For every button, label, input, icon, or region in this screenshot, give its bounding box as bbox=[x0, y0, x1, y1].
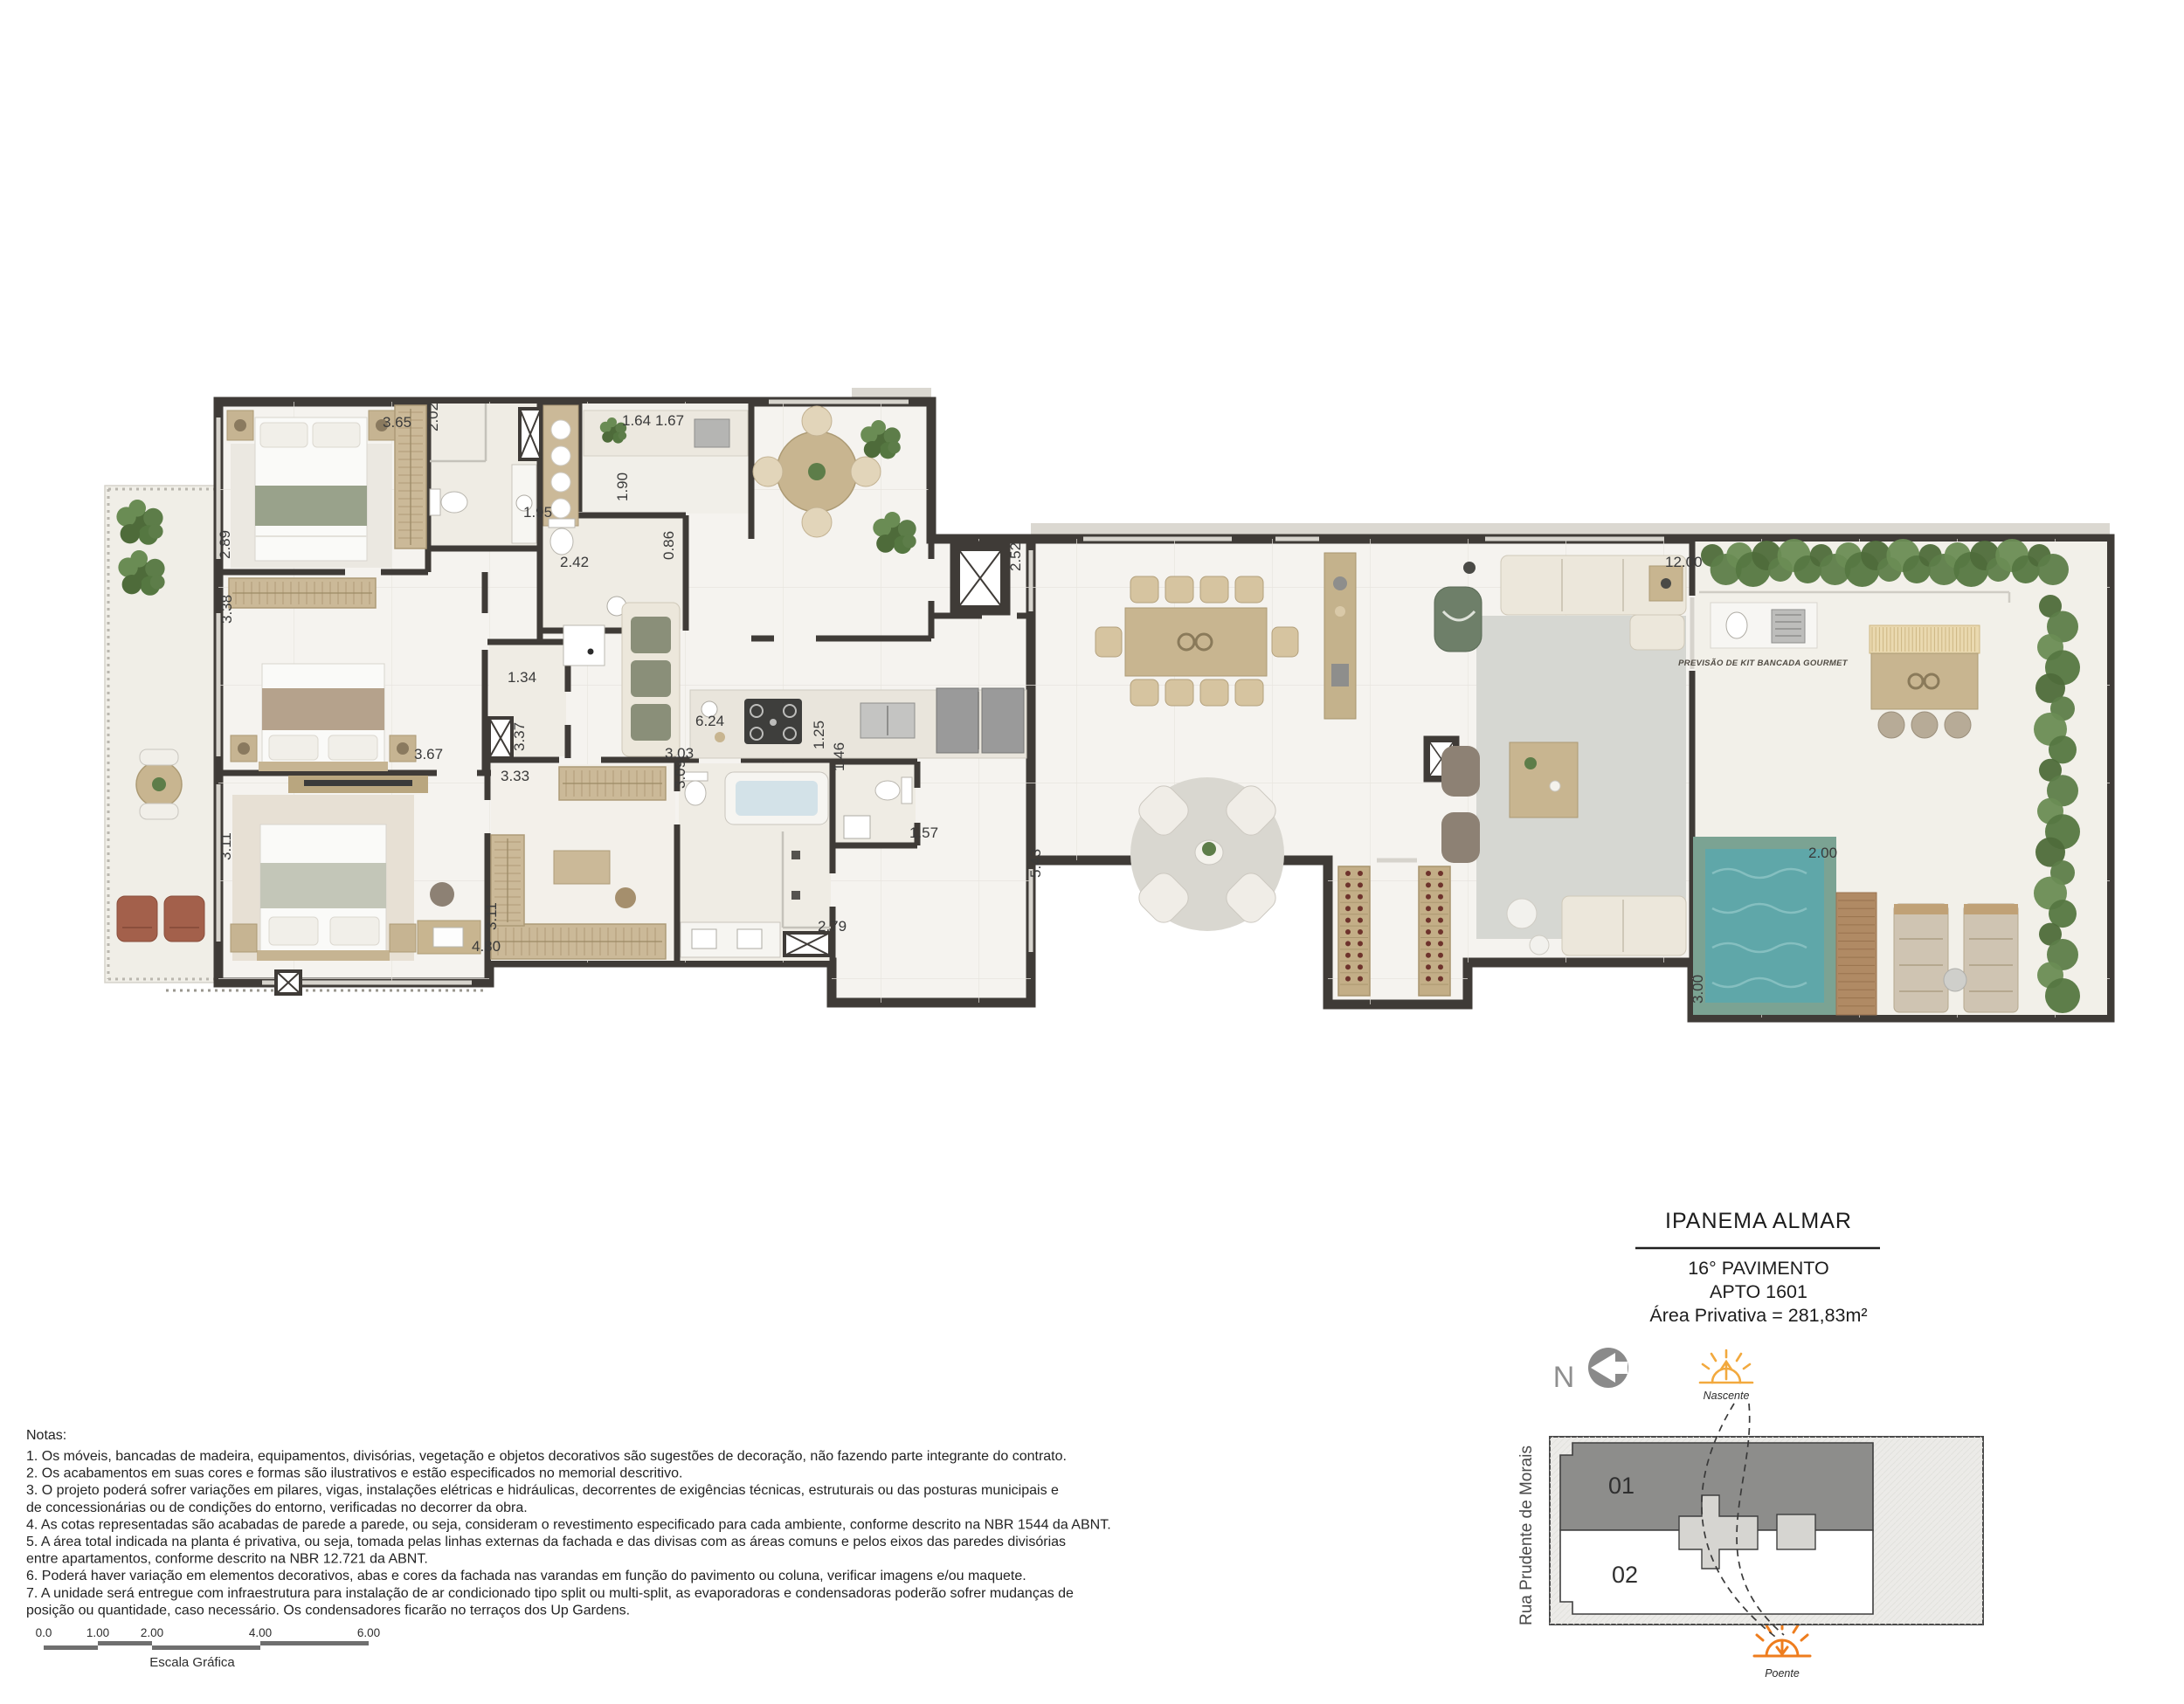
lounge-circle bbox=[1130, 777, 1284, 931]
plant bbox=[122, 575, 142, 594]
dimension-label: 3.67 bbox=[414, 746, 443, 762]
scale-tick-label: 6.00 bbox=[357, 1626, 380, 1639]
plant bbox=[602, 431, 613, 443]
sofa-cushion bbox=[631, 704, 671, 741]
scale-tick-label: 1.00 bbox=[86, 1626, 109, 1639]
plant bbox=[130, 550, 148, 568]
dimension-label: 1.46 bbox=[831, 742, 847, 771]
bedroom-1 bbox=[227, 410, 395, 568]
sunset-label: Poente bbox=[1765, 1667, 1800, 1680]
sink bbox=[844, 816, 870, 838]
note-line: 3. O projeto poderá sofrer variações em … bbox=[26, 1483, 1059, 1498]
scale-bar: 0.01.002.004.006.00 Escala Gráfica bbox=[36, 1626, 381, 1670]
dimension-label: 3.11 bbox=[483, 902, 500, 930]
scale-tick-labels: 0.01.002.004.006.00 bbox=[36, 1626, 381, 1639]
dining-chair bbox=[1095, 627, 1122, 657]
plant bbox=[876, 535, 895, 553]
toilet-tank bbox=[549, 519, 575, 528]
plant bbox=[902, 535, 916, 548]
dimension-label: 3.03 bbox=[665, 745, 694, 762]
area-label: Área Privativa = 281,83m² bbox=[1649, 1304, 1867, 1326]
scale-tick-label: 2.00 bbox=[141, 1626, 163, 1639]
note-line: 1. Os móveis, bancadas de madeira, equip… bbox=[26, 1449, 1067, 1464]
north-label: N bbox=[1553, 1361, 1575, 1394]
plant bbox=[607, 417, 617, 427]
basket bbox=[615, 887, 636, 908]
floorplan-sheet: PREVISÃO DE KIT BANCADA GOURMET 3.652.02… bbox=[0, 0, 2184, 1704]
plant bbox=[888, 441, 900, 453]
coffee-table bbox=[1510, 742, 1578, 818]
duct-shaft bbox=[520, 409, 541, 459]
plant bbox=[884, 512, 900, 528]
dimension-label: 4.80 bbox=[472, 938, 501, 955]
site-unit-02-label: 02 bbox=[1612, 1562, 1638, 1588]
pool-deck bbox=[1836, 893, 1876, 1015]
pillow bbox=[313, 423, 360, 447]
desk-chair bbox=[430, 882, 454, 907]
unit-label: APTO 1601 bbox=[1710, 1281, 1807, 1302]
street-label: Rua Prudente de Morais bbox=[1517, 1445, 1536, 1625]
dimension-label: 12.00 bbox=[1665, 554, 1703, 570]
kitchen bbox=[690, 688, 1026, 758]
bistro-plant bbox=[152, 777, 166, 791]
duct-shaft bbox=[489, 718, 512, 758]
sofa-chaise bbox=[1630, 615, 1684, 650]
sunrise-icon bbox=[1700, 1350, 1752, 1383]
scale-segment bbox=[152, 1645, 260, 1650]
bistro-chair bbox=[140, 749, 178, 765]
dimension-label: 3.38 bbox=[218, 595, 235, 624]
project-title: IPANEMA ALMAR bbox=[1665, 1209, 1852, 1233]
pillow bbox=[269, 735, 318, 760]
pillow bbox=[260, 423, 308, 447]
bar-fringe bbox=[1870, 625, 1980, 653]
blanket bbox=[262, 688, 384, 730]
pillow bbox=[328, 735, 377, 760]
elevator-shaft bbox=[950, 542, 1010, 615]
refrigerator bbox=[982, 688, 1024, 753]
plant bbox=[150, 575, 165, 590]
sofa-cushion bbox=[631, 660, 671, 697]
closet-island bbox=[554, 851, 610, 884]
dining-chair bbox=[1272, 627, 1298, 657]
scale-tick-label: 4.00 bbox=[249, 1626, 272, 1639]
marble-table bbox=[563, 625, 605, 666]
bar-stool bbox=[1945, 712, 1971, 738]
bathtub-water bbox=[736, 781, 818, 816]
dimension-label: 1.67 bbox=[655, 412, 684, 429]
dimension-label: 2.89 bbox=[217, 530, 233, 559]
side-table bbox=[1507, 899, 1537, 928]
dimension-label: 3.37 bbox=[511, 722, 528, 751]
toilet-tank bbox=[430, 489, 440, 515]
pillow bbox=[269, 917, 318, 945]
dimension-label: 3.00 bbox=[1690, 975, 1706, 1004]
site-map: 01 02 Rua Prudente de Morais bbox=[1517, 1404, 1983, 1639]
dining-chair bbox=[1200, 576, 1228, 603]
dining-chair bbox=[1165, 680, 1193, 706]
blanket bbox=[255, 486, 367, 526]
hedge-shrub bbox=[2037, 554, 2069, 585]
dimension-label: 2.42 bbox=[560, 554, 589, 570]
dining-chair bbox=[1130, 680, 1158, 706]
dimension-label: 5.43 bbox=[1027, 849, 1044, 878]
plant bbox=[871, 420, 886, 435]
plant bbox=[121, 524, 140, 543]
pouf bbox=[1441, 746, 1480, 797]
laptop bbox=[433, 928, 463, 947]
sink bbox=[737, 929, 762, 949]
side-table bbox=[1944, 969, 1966, 991]
note-line: 5. A área total indicada na planta é pri… bbox=[26, 1535, 1066, 1549]
scale-segment bbox=[44, 1645, 98, 1650]
nightstand bbox=[390, 924, 416, 952]
dimension-label: 2.00 bbox=[1808, 845, 1837, 861]
note-line: posição ou quantidade, caso necessário. … bbox=[26, 1603, 630, 1618]
plant bbox=[128, 500, 146, 517]
dimension-label: 2.02 bbox=[425, 403, 441, 431]
notes: Notas: 1. Os móveis, bancadas de madeira… bbox=[26, 1428, 1111, 1618]
dimension-label: 2.52 bbox=[1007, 542, 1024, 571]
scale-segment bbox=[260, 1641, 369, 1645]
dimension-label: 1.25 bbox=[811, 721, 827, 749]
armchair bbox=[164, 896, 204, 942]
bar-stool bbox=[1878, 712, 1904, 738]
plant bbox=[619, 431, 627, 440]
chair bbox=[753, 457, 783, 486]
bar-stool bbox=[1911, 712, 1938, 738]
dimension-label: 1.90 bbox=[614, 473, 631, 501]
note-line: de concessionárias ou de condições do en… bbox=[26, 1500, 528, 1515]
plant bbox=[149, 524, 163, 539]
chair bbox=[802, 507, 832, 537]
shower-head bbox=[791, 851, 800, 859]
blanket bbox=[260, 863, 386, 908]
sun-lounger bbox=[1964, 904, 2018, 1012]
tv bbox=[304, 780, 412, 786]
sun-lounger bbox=[1894, 904, 1948, 1012]
site-annex bbox=[1777, 1514, 1815, 1549]
dimension-label: 3.09 bbox=[672, 760, 688, 789]
notes-lines: 1. Os móveis, bancadas de madeira, equip… bbox=[26, 1449, 1111, 1618]
gourmet-sink bbox=[1726, 612, 1747, 638]
dimension-label: 0.86 bbox=[660, 531, 677, 560]
dimension-label: 1.64 bbox=[622, 412, 651, 429]
headboard bbox=[259, 762, 388, 771]
nightstand bbox=[231, 924, 257, 952]
compass: N bbox=[1553, 1348, 1628, 1394]
side-table bbox=[1530, 935, 1549, 955]
sunrise-label: Nascente bbox=[1704, 1390, 1750, 1402]
dimension-label: 3.33 bbox=[501, 768, 529, 784]
dimension-label: 3.65 bbox=[383, 414, 411, 431]
living-rug bbox=[1476, 616, 1686, 939]
dimension-label: 1.95 bbox=[523, 504, 552, 521]
plant bbox=[864, 441, 881, 458]
vent-shaft bbox=[784, 933, 830, 955]
laundry-sink bbox=[695, 419, 729, 447]
wine-rack bbox=[1419, 866, 1450, 996]
headboard bbox=[257, 950, 390, 961]
dimension-label: 3.11 bbox=[218, 832, 234, 860]
dimension-label: 2.79 bbox=[818, 918, 847, 935]
sofa-cushion bbox=[631, 617, 671, 653]
note-line: 6. Poderá haver variação em elementos de… bbox=[26, 1569, 1026, 1583]
pillow bbox=[330, 917, 379, 945]
chair bbox=[802, 406, 832, 436]
floorplan-drawing: PREVISÃO DE KIT BANCADA GOURMET 3.652.02… bbox=[0, 0, 2184, 1704]
deck bbox=[1836, 893, 1876, 1015]
bistro-chair bbox=[140, 804, 178, 819]
dimension-label: 6.24 bbox=[695, 713, 724, 729]
sink bbox=[692, 929, 716, 949]
toilet bbox=[550, 528, 573, 555]
note-line: entre apartamentos, conforme descrito na… bbox=[26, 1552, 428, 1567]
dimension-label: 1.34 bbox=[508, 669, 536, 686]
scale-segment bbox=[98, 1641, 152, 1645]
dining-chair bbox=[1165, 576, 1193, 603]
shower-head bbox=[791, 891, 800, 900]
armchair bbox=[117, 896, 157, 942]
scale-tick-label: 0.0 bbox=[36, 1626, 52, 1639]
note-line: 2. Os acabamentos em suas cores e formas… bbox=[26, 1466, 682, 1481]
hedge-shrub bbox=[2045, 978, 2080, 1013]
refrigerator bbox=[936, 688, 978, 753]
floor-lamp bbox=[1463, 562, 1476, 574]
dining-chair bbox=[1130, 576, 1158, 603]
note-line: 4. As cotas representadas são acabadas d… bbox=[26, 1517, 1111, 1532]
note-line: 7. A unidade será entregue com infraestr… bbox=[26, 1586, 1074, 1601]
toilet bbox=[875, 781, 900, 800]
floor-label: 16° PAVIMENTO bbox=[1688, 1258, 1829, 1279]
wine-rack bbox=[1338, 866, 1370, 996]
site-unit-01-label: 01 bbox=[1608, 1473, 1635, 1499]
dining-chair bbox=[1235, 576, 1263, 603]
dining-chair bbox=[1235, 680, 1263, 706]
gourmet-note: PREVISÃO DE KIT BANCADA GOURMET bbox=[1678, 659, 1849, 668]
title-block: IPANEMA ALMAR 16° PAVIMENTO APTO 1601 Ár… bbox=[1635, 1209, 1880, 1326]
vent-shaft bbox=[276, 971, 301, 994]
toilet bbox=[441, 492, 467, 513]
dining-chair bbox=[1200, 680, 1228, 706]
scale-caption: Escala Gráfica bbox=[149, 1655, 235, 1670]
chair bbox=[851, 457, 881, 486]
notes-heading: Notas: bbox=[26, 1428, 66, 1443]
toilet-tank bbox=[902, 777, 912, 804]
dimension-label: 1.57 bbox=[909, 824, 938, 841]
pergola-fringe bbox=[1870, 625, 1980, 653]
pouf bbox=[1441, 812, 1480, 863]
